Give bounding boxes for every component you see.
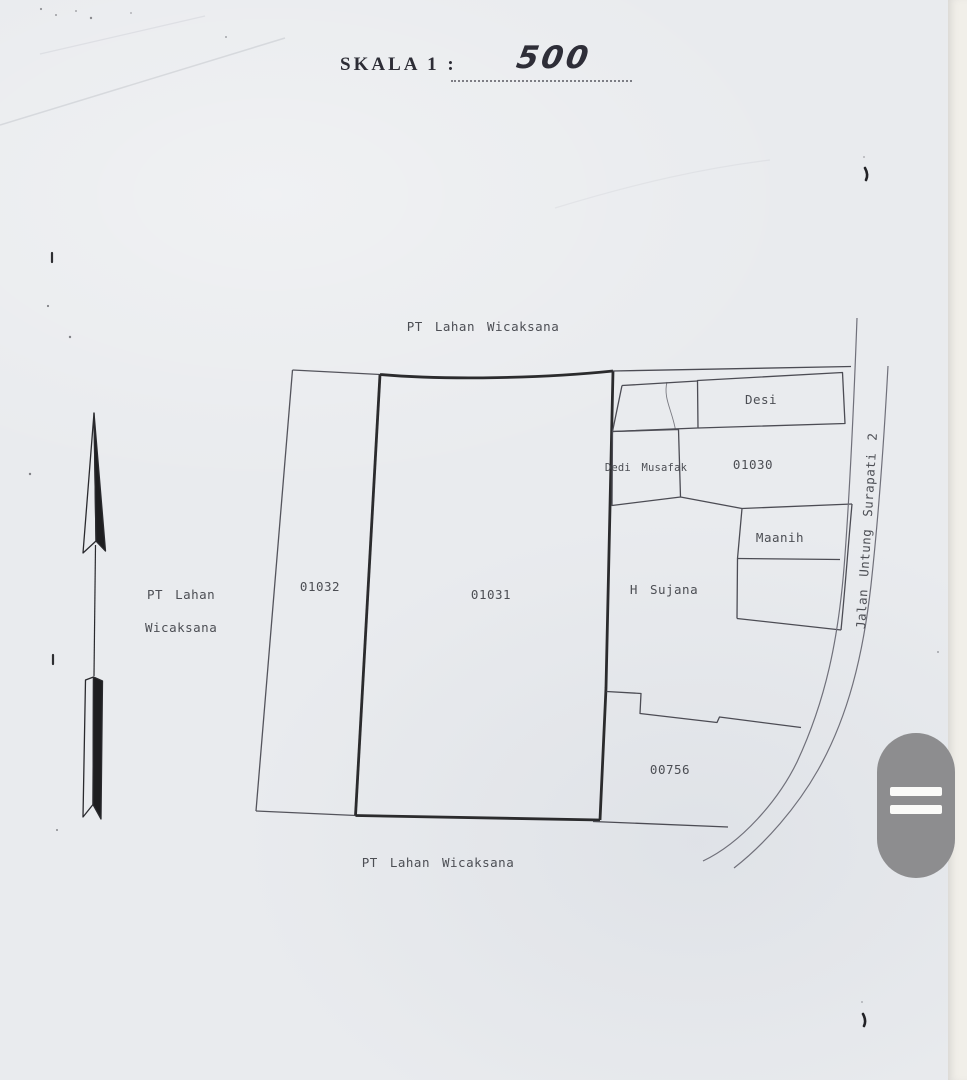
scanned-document-page: SKALA 1 : 500 bbox=[0, 0, 967, 1080]
interior-crease-line bbox=[666, 382, 676, 430]
parcel-label-01032: 01032 bbox=[300, 579, 340, 594]
label-owner-left-line1: PT Lahan bbox=[147, 587, 215, 602]
north-arrow-icon bbox=[83, 413, 106, 819]
label-owner-bottom: PT Lahan Wicaksana bbox=[362, 855, 514, 870]
site-plan-map: PT Lahan Wicaksana PT Lahan Wicaksana PT… bbox=[0, 0, 967, 1080]
parcel-label-01031: 01031 bbox=[471, 587, 511, 602]
label-owner-left-line2: Wicaksana bbox=[145, 620, 217, 635]
paper-creases bbox=[0, 16, 770, 208]
handle-bar bbox=[890, 787, 942, 796]
double-bar-handle-icon bbox=[890, 787, 942, 814]
edge-panel-handle[interactable] bbox=[877, 733, 955, 878]
parcel-label-dedi-musafak: Dedi Musafak bbox=[605, 462, 688, 474]
parcel-irregular-outline bbox=[613, 381, 698, 432]
connector-line bbox=[681, 497, 743, 509]
handle-bar bbox=[890, 805, 942, 814]
block-top-boundary bbox=[613, 367, 851, 372]
parcel-label-desi: Desi bbox=[745, 392, 777, 407]
parcel-label-h-sujana: H Sujana bbox=[630, 582, 698, 597]
ink-marks bbox=[29, 8, 939, 1026]
label-owner-top: PT Lahan Wicaksana bbox=[407, 319, 559, 334]
parcel-label-00756: 00756 bbox=[650, 762, 690, 777]
parcel-00756-top-boundary bbox=[607, 692, 802, 728]
road-edge-left bbox=[703, 318, 857, 861]
parcel-00756-bottom-boundary bbox=[593, 822, 728, 828]
parcel-label-maanih: Maanih bbox=[756, 530, 804, 545]
parcel-maanih-outline bbox=[737, 504, 852, 630]
parcel-label-01030: 01030 bbox=[733, 457, 773, 472]
